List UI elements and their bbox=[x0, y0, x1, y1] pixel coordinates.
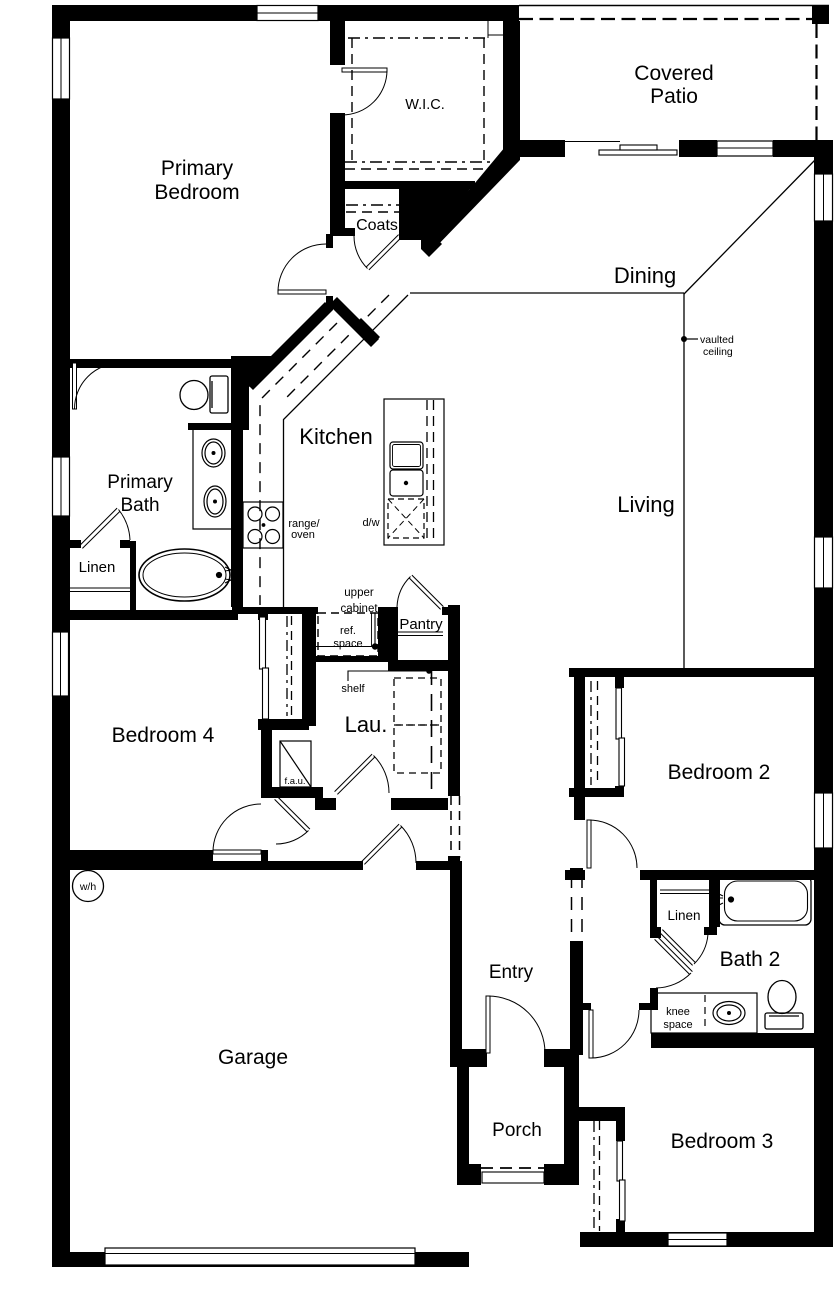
svg-text:Living: Living bbox=[617, 492, 674, 517]
svg-text:space: space bbox=[663, 1019, 692, 1031]
svg-text:W.I.C.: W.I.C. bbox=[405, 97, 444, 113]
svg-text:cabinet: cabinet bbox=[340, 603, 378, 615]
svg-text:d/w: d/w bbox=[362, 517, 379, 529]
svg-text:ceiling: ceiling bbox=[703, 346, 733, 358]
svg-text:Bath: Bath bbox=[120, 495, 159, 516]
svg-text:Garage: Garage bbox=[218, 1046, 288, 1069]
svg-text:Bedroom: Bedroom bbox=[154, 181, 239, 204]
svg-text:space: space bbox=[333, 638, 362, 650]
svg-text:upper: upper bbox=[344, 587, 374, 599]
svg-text:Bedroom 2: Bedroom 2 bbox=[668, 761, 771, 784]
svg-text:Entry: Entry bbox=[489, 962, 534, 983]
svg-text:Kitchen: Kitchen bbox=[299, 424, 372, 449]
svg-text:Bath 2: Bath 2 bbox=[720, 948, 781, 971]
svg-text:f.a.u.: f.a.u. bbox=[284, 776, 305, 787]
svg-text:shelf: shelf bbox=[341, 683, 365, 695]
svg-text:Lau.: Lau. bbox=[345, 712, 388, 737]
svg-text:Bedroom 4: Bedroom 4 bbox=[112, 724, 215, 747]
svg-text:ref.: ref. bbox=[340, 625, 356, 637]
svg-text:Coats: Coats bbox=[356, 217, 398, 234]
svg-text:Linen: Linen bbox=[79, 559, 116, 576]
svg-text:knee: knee bbox=[666, 1006, 690, 1018]
svg-text:oven: oven bbox=[291, 529, 315, 541]
svg-text:Porch: Porch bbox=[492, 1120, 542, 1141]
svg-text:Patio: Patio bbox=[650, 85, 698, 108]
svg-text:Primary: Primary bbox=[161, 157, 234, 180]
svg-text:Bedroom 3: Bedroom 3 bbox=[671, 1130, 774, 1153]
svg-text:Dining: Dining bbox=[614, 263, 676, 288]
svg-text:Linen: Linen bbox=[667, 908, 700, 923]
svg-text:w/h: w/h bbox=[79, 881, 97, 893]
svg-text:Covered: Covered bbox=[634, 62, 713, 85]
svg-text:Primary: Primary bbox=[107, 472, 173, 493]
svg-text:Pantry: Pantry bbox=[399, 616, 443, 633]
svg-text:vaulted: vaulted bbox=[700, 334, 734, 346]
